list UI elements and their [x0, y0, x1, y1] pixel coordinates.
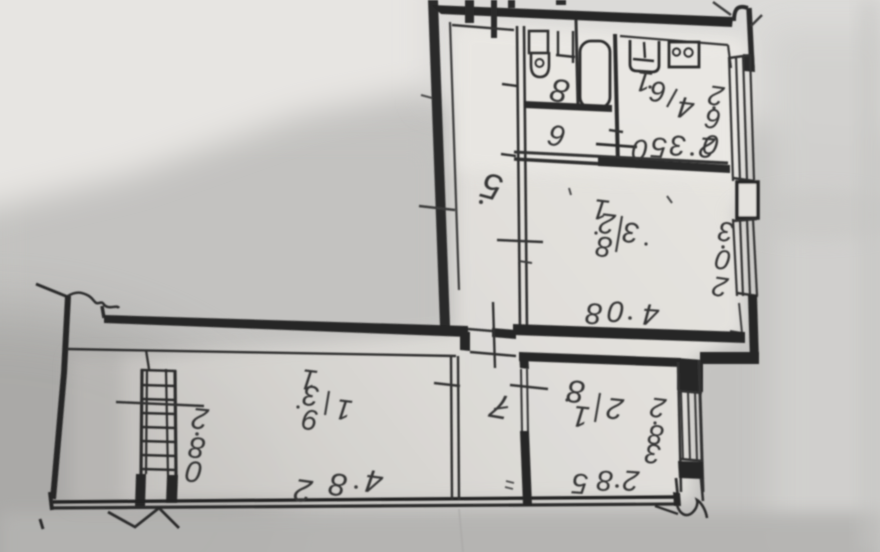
svg-text:8: 8 [596, 463, 614, 496]
svg-text:4: 4 [642, 297, 661, 331]
svg-text:1: 1 [571, 399, 591, 434]
svg-text:5: 5 [649, 130, 668, 163]
svg-text:8: 8 [584, 296, 603, 330]
svg-text:0: 0 [606, 294, 625, 328]
svg-text:2: 2 [622, 463, 641, 496]
svg-text:5: 5 [570, 466, 589, 499]
svg-text:3: 3 [669, 128, 687, 161]
svg-text:0: 0 [631, 132, 649, 165]
